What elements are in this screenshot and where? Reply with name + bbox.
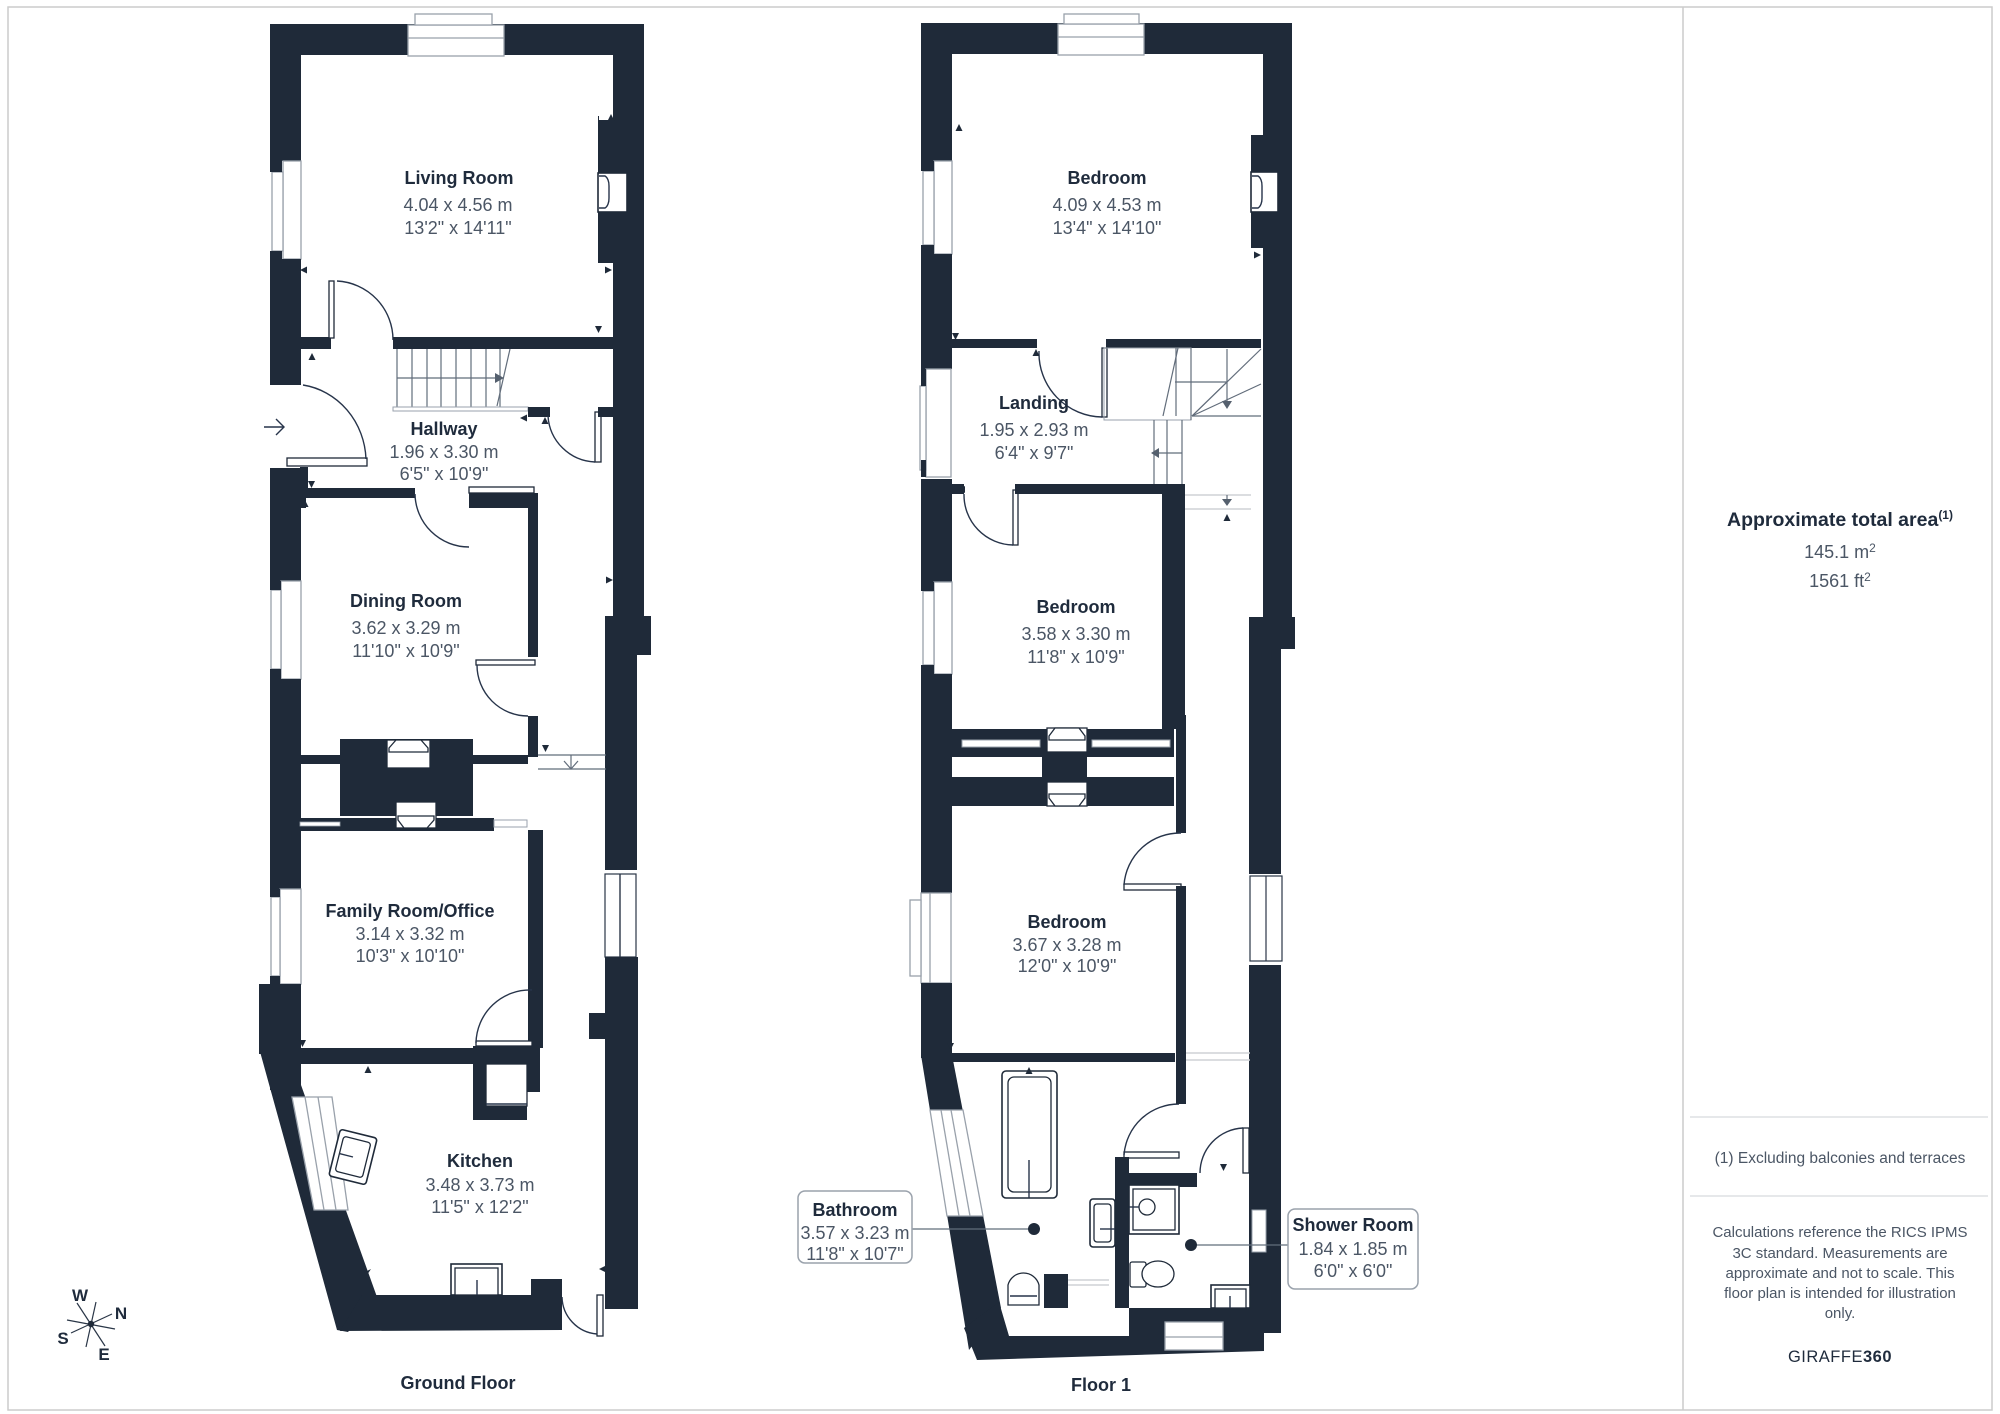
svg-text:S: S — [57, 1329, 68, 1348]
svg-text:4.04 x 4.56 m: 4.04 x 4.56 m — [403, 195, 512, 215]
svg-text:13'2" x 14'11": 13'2" x 14'11" — [404, 218, 511, 238]
svg-text:Kitchen: Kitchen — [447, 1151, 513, 1171]
svg-text:(1) Excluding balconies and te: (1) Excluding balconies and terraces — [1715, 1150, 1966, 1167]
svg-text:1.96 x 3.30 m: 1.96 x 3.30 m — [389, 442, 498, 462]
svg-text:1.95 x 2.93 m: 1.95 x 2.93 m — [979, 420, 1088, 440]
svg-text:Shower Room: Shower Room — [1292, 1215, 1413, 1235]
svg-text:6'4" x 9'7": 6'4" x 9'7" — [995, 443, 1074, 463]
svg-text:11'8" x 10'9": 11'8" x 10'9" — [1027, 647, 1124, 667]
svg-text:Ground Floor: Ground Floor — [401, 1373, 516, 1393]
svg-text:3.62 x 3.29 m: 3.62 x 3.29 m — [351, 618, 460, 638]
svg-text:Approximate total area(1): Approximate total area(1) — [1727, 508, 1953, 531]
svg-text:10'3" x 10'10": 10'3" x 10'10" — [356, 946, 465, 966]
svg-text:Landing: Landing — [999, 393, 1069, 413]
svg-text:3.67 x 3.28 m: 3.67 x 3.28 m — [1012, 935, 1121, 955]
svg-text:Calculations reference the RIC: Calculations reference the RICS IPMS — [1712, 1224, 1967, 1241]
svg-text:11'8" x 10'7": 11'8" x 10'7" — [806, 1244, 903, 1264]
svg-text:Bedroom: Bedroom — [1027, 912, 1106, 932]
svg-text:Bedroom: Bedroom — [1067, 168, 1146, 188]
svg-text:3.58 x 3.30 m: 3.58 x 3.30 m — [1021, 624, 1130, 644]
svg-text:floor plan is intended for ill: floor plan is intended for illustration — [1724, 1285, 1956, 1302]
svg-text:Bathroom: Bathroom — [813, 1200, 898, 1220]
svg-text:4.09 x 4.53 m: 4.09 x 4.53 m — [1052, 195, 1161, 215]
svg-text:only.: only. — [1825, 1305, 1856, 1322]
svg-text:GIRAFFE360: GIRAFFE360 — [1788, 1348, 1892, 1366]
svg-text:approximate and not to scale.: approximate and not to scale. This — [1725, 1265, 1954, 1282]
svg-text:12'0" x 10'9": 12'0" x 10'9" — [1018, 956, 1117, 976]
svg-text:Bedroom: Bedroom — [1036, 597, 1115, 617]
svg-text:3.14 x 3.32 m: 3.14 x 3.32 m — [355, 924, 464, 944]
svg-text:3.57 x 3.23 m: 3.57 x 3.23 m — [800, 1223, 909, 1243]
svg-text:W: W — [72, 1286, 89, 1305]
svg-text:6'5" x 10'9": 6'5" x 10'9" — [400, 464, 489, 484]
svg-text:Hallway: Hallway — [410, 419, 477, 439]
svg-text:6'0" x 6'0": 6'0" x 6'0" — [1314, 1261, 1393, 1281]
svg-text:145.1 m2: 145.1 m2 — [1804, 541, 1876, 562]
svg-text:11'10" x 10'9": 11'10" x 10'9" — [352, 641, 459, 661]
svg-text:N: N — [115, 1304, 127, 1323]
svg-text:E: E — [98, 1345, 109, 1364]
svg-text:Living Room: Living Room — [405, 168, 514, 188]
svg-text:11'5" x 12'2": 11'5" x 12'2" — [431, 1197, 528, 1217]
svg-text:Floor 1: Floor 1 — [1071, 1375, 1131, 1395]
svg-text:Family Room/Office: Family Room/Office — [325, 901, 494, 921]
svg-text:3.48 x 3.73 m: 3.48 x 3.73 m — [425, 1175, 534, 1195]
svg-text:1561 ft2: 1561 ft2 — [1809, 570, 1871, 591]
svg-text:13'4" x 14'10": 13'4" x 14'10" — [1053, 218, 1162, 238]
svg-text:3C standard. Measurements are: 3C standard. Measurements are — [1732, 1245, 1947, 1262]
svg-text:Dining Room: Dining Room — [350, 591, 462, 611]
svg-text:1.84 x 1.85 m: 1.84 x 1.85 m — [1298, 1239, 1407, 1259]
